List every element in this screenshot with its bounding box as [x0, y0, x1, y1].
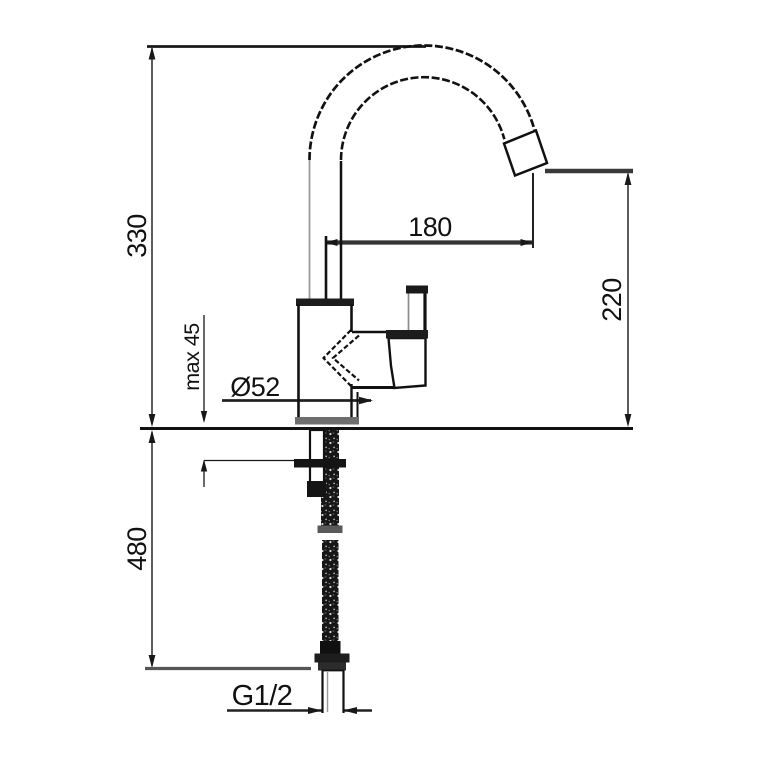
label-max-thickness: max 45 [180, 323, 204, 391]
label-base-diameter: Ø52 [230, 372, 280, 402]
lever-top-cap [406, 286, 428, 294]
shank-end-cap [318, 526, 343, 534]
drawing-background [0, 0, 762, 762]
flexible-hose [322, 540, 339, 643]
label-overall-height: 330 [122, 214, 152, 258]
tail-pipe-fill [322, 671, 345, 714]
label-spout-reach: 180 [408, 212, 452, 242]
connector-nut-body [318, 663, 346, 671]
connector-nut-flange [315, 654, 350, 663]
mounting-stud-foot [307, 481, 326, 497]
body-top-cap [296, 299, 354, 307]
clamp-washer [294, 459, 346, 468]
label-hose-length: 480 [122, 527, 152, 571]
label-connection-thread: G1/2 [232, 680, 293, 712]
base-flange [295, 417, 359, 425]
cartridge-cap [386, 330, 428, 339]
hose-end-fitting [320, 641, 341, 654]
cartridge-housing [389, 338, 426, 388]
label-outlet-height: 220 [597, 278, 627, 322]
faucet-technical-drawing: 330 480 220 180 max 45 Ø52 [0, 0, 762, 762]
mounting-stud [310, 430, 324, 483]
technical-drawing-page: 330 480 220 180 max 45 Ø52 [0, 0, 762, 762]
